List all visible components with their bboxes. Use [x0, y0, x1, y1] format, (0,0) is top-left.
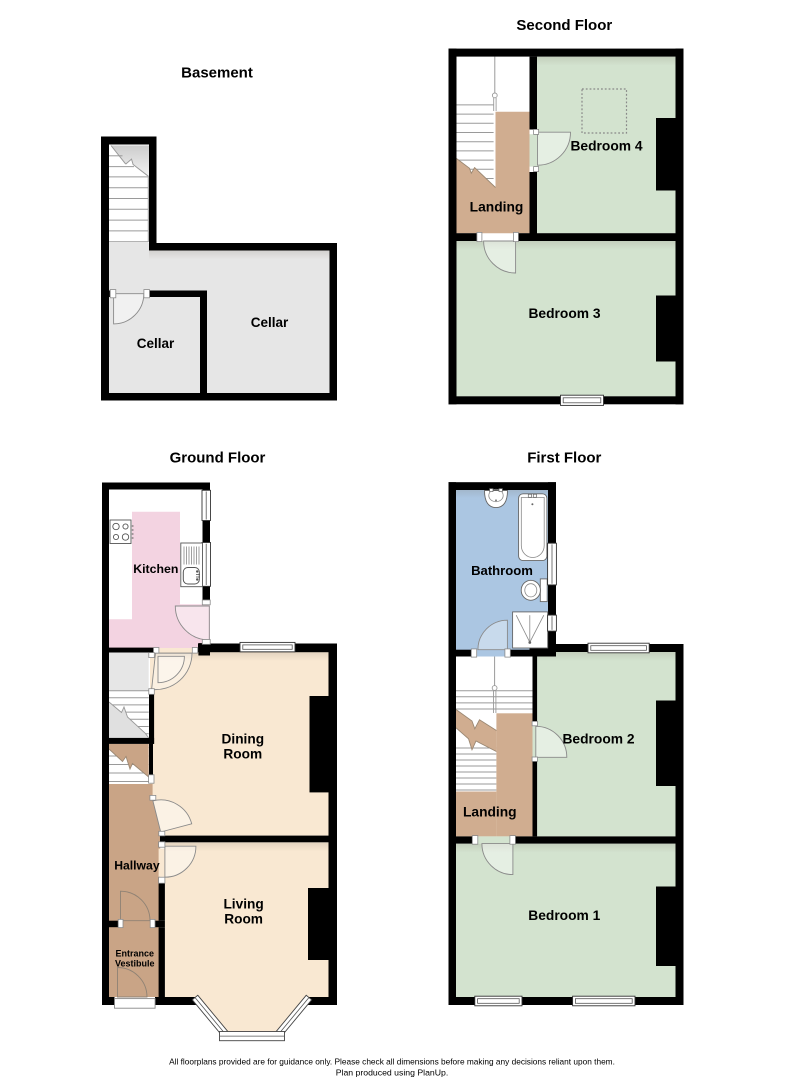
svg-text:Plan produced using PlanUp.: Plan produced using PlanUp. — [336, 1068, 449, 1078]
svg-text:Vestibule: Vestibule — [115, 959, 155, 969]
svg-text:Kitchen: Kitchen — [133, 562, 178, 576]
svg-text:First Floor: First Floor — [527, 450, 601, 467]
svg-text:Dining: Dining — [222, 732, 265, 747]
svg-text:Bedroom 2: Bedroom 2 — [562, 732, 634, 747]
svg-text:Room: Room — [223, 747, 262, 762]
svg-text:Basement: Basement — [181, 65, 253, 82]
svg-text:Landing: Landing — [470, 200, 524, 215]
svg-text:Hallway: Hallway — [114, 859, 160, 873]
svg-text:Ground Floor: Ground Floor — [170, 450, 266, 467]
svg-text:Bedroom 4: Bedroom 4 — [570, 139, 642, 154]
svg-text:All floorplans provided are fo: All floorplans provided are for guidance… — [169, 1057, 615, 1067]
svg-text:Cellar: Cellar — [137, 336, 175, 351]
svg-text:Cellar: Cellar — [251, 315, 289, 330]
svg-text:Landing: Landing — [463, 805, 517, 820]
svg-text:Living: Living — [223, 897, 263, 912]
svg-text:Entrance: Entrance — [116, 949, 155, 959]
svg-text:Room: Room — [224, 912, 263, 927]
svg-text:Bathroom: Bathroom — [471, 563, 533, 578]
svg-text:Second Floor: Second Floor — [516, 17, 612, 34]
svg-text:Bedroom 1: Bedroom 1 — [528, 908, 600, 923]
svg-text:Bedroom 3: Bedroom 3 — [528, 306, 600, 321]
